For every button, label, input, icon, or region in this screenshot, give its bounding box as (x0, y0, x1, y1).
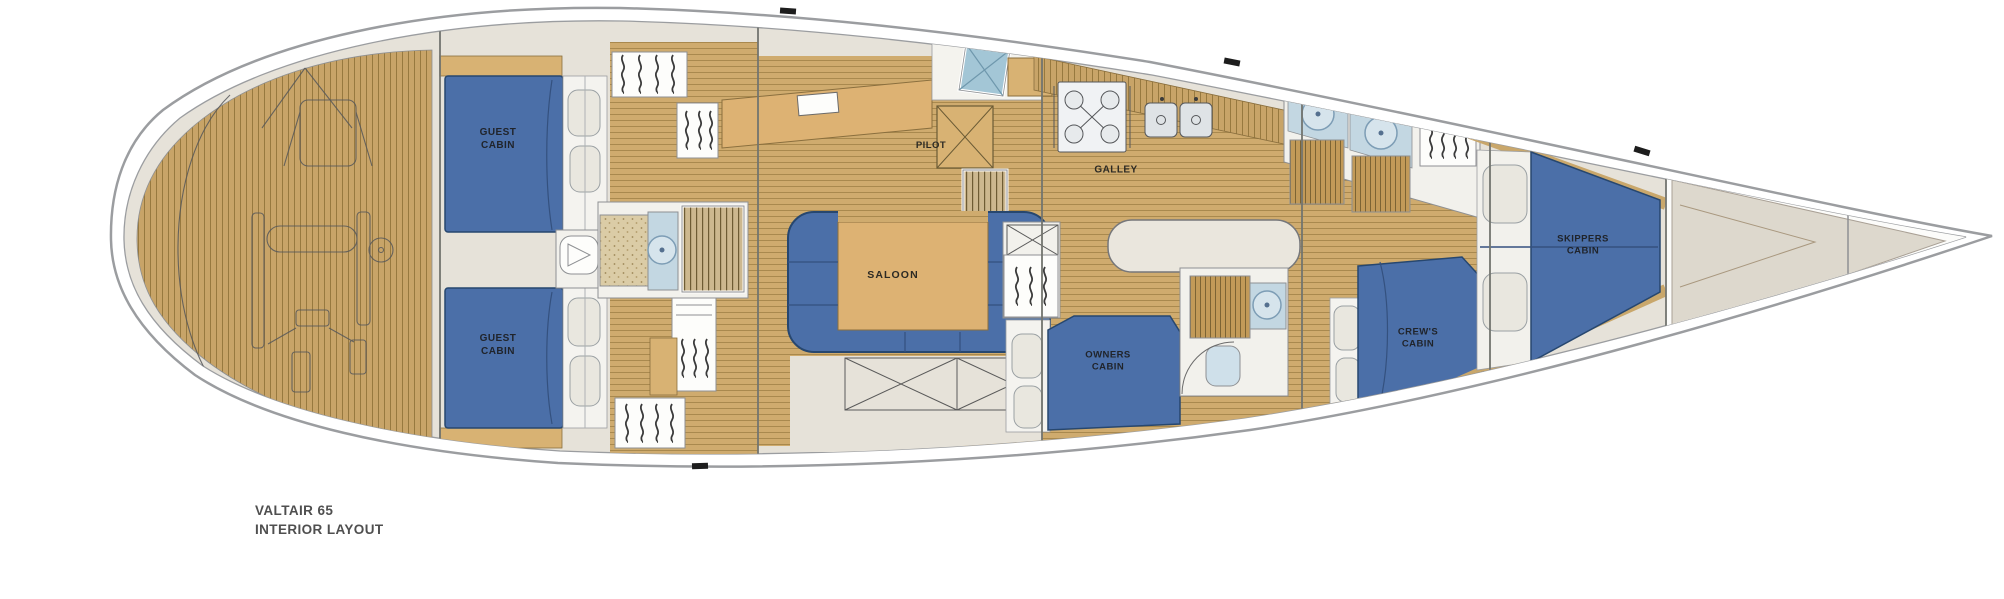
label-galley: GALLEY (1094, 164, 1137, 177)
toilet-icon (560, 236, 598, 274)
boat-name: VALTAIR 65 (255, 502, 384, 521)
label-saloon: SALOON (867, 269, 919, 283)
label-guest-cabin-port: GUEST CABIN (472, 126, 524, 152)
guest-bed-starboard (445, 288, 563, 428)
seat-locker (650, 338, 677, 395)
hanging-locker (677, 103, 718, 158)
drawing-subtitle: INTERIOR LAYOUT (255, 521, 384, 540)
boat-interior-plan: GUEST CABIN GUEST CABIN SALOON PILOT GAL… (0, 0, 2004, 599)
shower-grating (1190, 276, 1250, 338)
label-skippers-cabin: SKIPPERS CABIN (1551, 234, 1615, 259)
label-guest-cabin-starboard: GUEST CABIN (472, 332, 524, 358)
drain-dot (1265, 303, 1270, 308)
settee-hatch (797, 92, 839, 115)
hanging-locker (1004, 255, 1058, 317)
shower-grating (1352, 156, 1410, 212)
sofa-opening (838, 211, 988, 222)
owners-head (1180, 268, 1288, 396)
headboard (440, 56, 562, 76)
label-pilot: PILOT (916, 140, 946, 152)
guest-cabin-starboard (440, 288, 607, 448)
label-owners-cabin: OWNERS CABIN (1080, 350, 1136, 375)
guest-bed-port (445, 76, 563, 232)
under-sofa-deck (790, 356, 1042, 452)
toilet-icon (1206, 346, 1240, 386)
drawing-title: VALTAIR 65 INTERIOR LAYOUT (255, 502, 384, 540)
shower-grating (1290, 140, 1344, 204)
drain-dot (660, 248, 665, 253)
companionway-steps (682, 206, 744, 292)
label-crews-cabin: CREW'S CABIN (1393, 327, 1443, 352)
shower-floor (600, 215, 648, 286)
galley-island (1108, 220, 1300, 272)
